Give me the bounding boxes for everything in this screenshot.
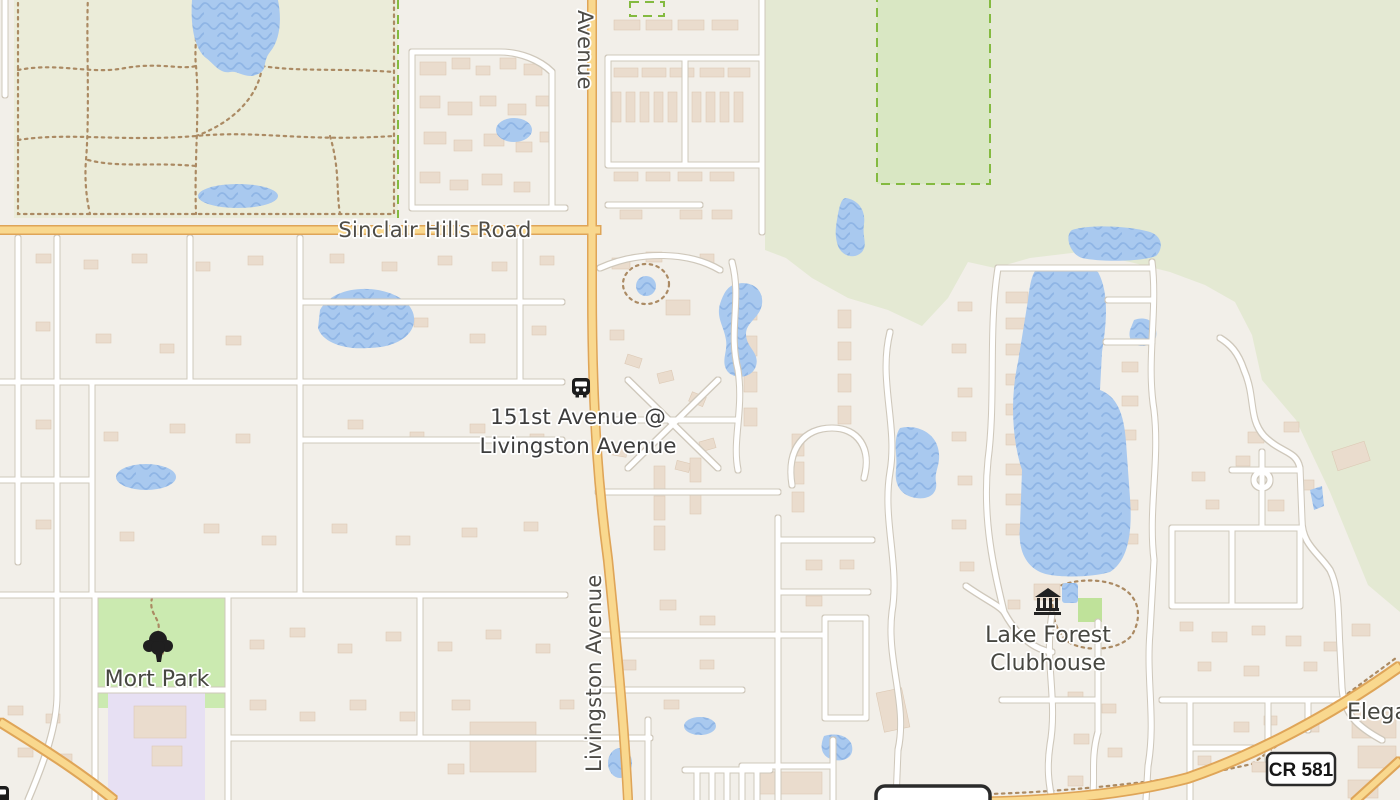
stop-label-line2[interactable]: Livingston Avenue	[479, 434, 676, 459]
clubhouse-label-line1: Lake Forest	[985, 623, 1111, 648]
clubhouse-label-line2: Clubhouse	[990, 651, 1106, 676]
road-label-livingston: Livingston Avenue	[582, 574, 606, 772]
stop-label-line1[interactable]: 151st Avenue @	[490, 405, 666, 430]
bus-stop-icon[interactable]	[572, 378, 590, 398]
road-label-sinclair-hills: Sinclair Hills Road	[338, 218, 531, 242]
map-canvas[interactable]: CR 581 CR 581 Sinclair Hills Road Avenue…	[0, 0, 1400, 800]
route-shield-cr581-partial: CR 581	[876, 786, 990, 800]
road-label-avenue-top: Avenue	[573, 10, 597, 90]
park-label: Mort Park	[105, 667, 210, 692]
edge-label-truncated: Elega	[1347, 700, 1400, 725]
route-shield-cr581: CR 581	[1267, 753, 1335, 785]
conservation-area	[877, 0, 990, 184]
bus-stop-icon-partial	[0, 786, 9, 800]
clubhouse-green	[1078, 598, 1102, 622]
svg-text:CR 581: CR 581	[1269, 760, 1334, 781]
